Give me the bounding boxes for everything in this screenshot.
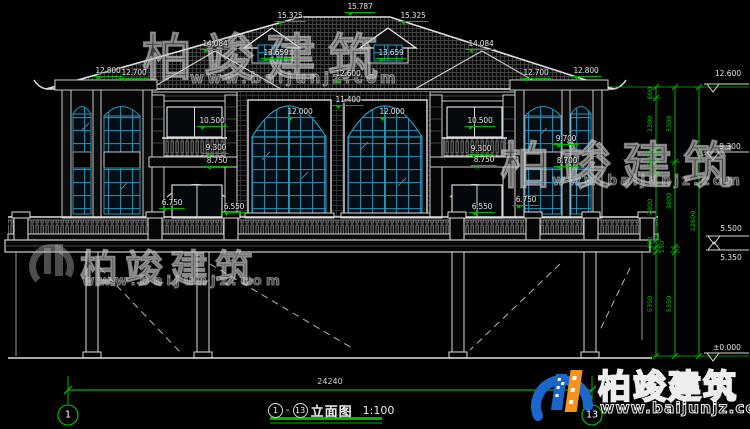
watermark-url-text: www.baijunjz.com: [82, 273, 284, 289]
drawing-title: 立面图: [311, 401, 353, 420]
level-label: 12.600: [332, 69, 363, 80]
dimension-value: 400: [647, 237, 654, 249]
title-separator: -: [286, 405, 290, 416]
level-label: 6.550: [469, 202, 495, 213]
dimension-value: 5350: [647, 296, 654, 313]
level-label: 13.659: [375, 48, 406, 59]
level-label: 11.400: [332, 95, 363, 106]
drawing-scale: 1:100: [363, 404, 395, 417]
elevation-drawing-canvas: 柏竣建筑 www.baijunjz.com 柏竣建筑 www.baijunjz.…: [0, 0, 750, 429]
brand-logo-block: 柏竣建筑 www.baijunjz.com: [522, 358, 750, 429]
drawing-title-block: 1 - 13 立面图 1:100: [268, 401, 394, 420]
dimension-value: 150: [659, 241, 666, 253]
title-axis-to: 13: [293, 403, 308, 418]
dimension-value: 2300: [647, 116, 654, 133]
datum-level-label: 12.600: [715, 70, 741, 78]
level-label: 12.800: [570, 66, 601, 77]
level-label: 6.550: [221, 202, 247, 213]
level-label: 8.750: [471, 155, 497, 166]
brand-url-text: www.baijunjz.com: [600, 399, 750, 417]
datum-level-label: 5.350: [720, 254, 741, 262]
datum-level-label: 5.500: [720, 225, 741, 233]
level-label: 6.750: [159, 198, 185, 209]
level-label: 12.000: [284, 107, 315, 118]
level-label: 14.084: [465, 39, 496, 50]
dimension-value: 3800: [666, 193, 673, 210]
level-label: 10.500: [196, 116, 227, 127]
level-label: 15.787: [344, 2, 375, 13]
dimension-value: 5350: [666, 296, 673, 313]
datum-level-label: 9.300: [719, 143, 740, 151]
level-label: 14.084: [199, 39, 230, 50]
dimension-value: 600: [647, 87, 654, 99]
terrace-railing: [8, 212, 658, 240]
level-label: 15.325: [397, 11, 428, 22]
level-label: 15.325: [274, 11, 305, 22]
dimension-value: 2800: [647, 199, 654, 216]
level-label: 9.700: [553, 134, 579, 145]
level-label: 10.500: [464, 116, 495, 127]
watermark-url-text: www.baijunjz.com: [190, 69, 399, 87]
level-label: 12.700: [118, 68, 149, 79]
datum-level-label: ±0.000: [713, 344, 741, 352]
level-label: 6.750: [513, 195, 539, 206]
level-label: 12.700: [520, 68, 551, 79]
watermark-url-text: www.baijunjz.com: [552, 173, 743, 189]
dimension-value: 12600: [690, 211, 697, 232]
level-label: 9.300: [203, 143, 229, 154]
dimension-value: 400: [647, 150, 654, 162]
level-label: 8.750: [204, 156, 230, 167]
level-label: 9.300: [468, 144, 494, 155]
title-axis-from: 1: [268, 403, 283, 418]
watermark-logo-icon: [22, 236, 78, 290]
baijun-logo-icon: [522, 360, 596, 428]
axis-number-left: 1: [65, 410, 71, 420]
level-label: 12.000: [376, 107, 407, 118]
dimension-value: 600: [647, 162, 654, 174]
overall-width-dimension: 24240: [317, 378, 342, 386]
level-label: 13.659: [260, 48, 291, 59]
dimension-value: 3300: [666, 116, 673, 133]
level-label: 8.700: [554, 156, 580, 167]
tower-left: [62, 90, 152, 218]
